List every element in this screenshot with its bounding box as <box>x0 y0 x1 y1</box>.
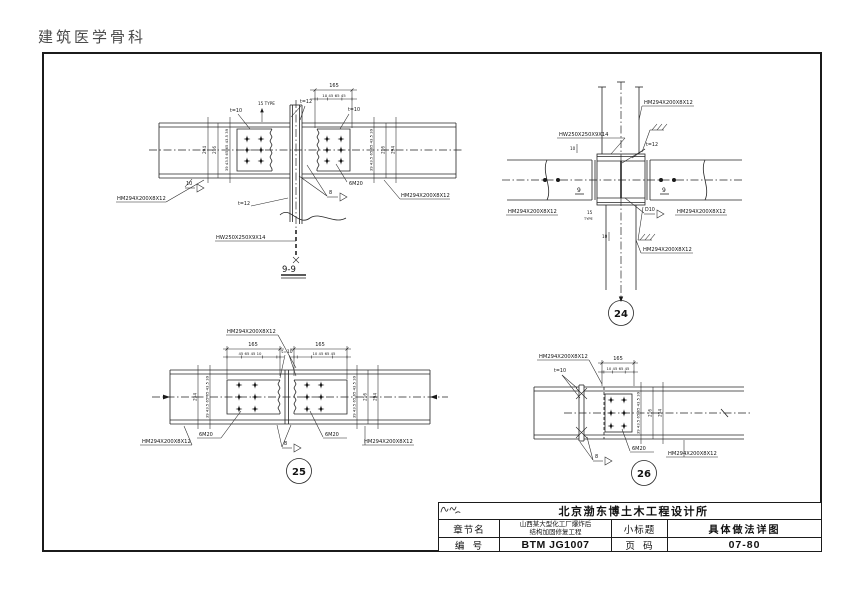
section-mark: 9 <box>577 187 581 194</box>
section-mark: 9 <box>662 187 666 194</box>
beam-size-label: HM294X200X8X12 <box>539 354 588 360</box>
typ-weld-label: 15 <box>587 210 593 215</box>
beam-size-label: HM294X200X8X12 <box>364 439 413 445</box>
dim-stack-label: 39 43.5 65 65 43.5 39 <box>224 128 229 171</box>
detail-number-badge: 24 <box>614 309 628 320</box>
dim-depth-label: 294 <box>202 146 207 154</box>
dim-depth-label: 216 <box>648 409 653 417</box>
section-title: 9-9 <box>282 265 296 275</box>
gap-dim-label: 10 <box>602 234 608 239</box>
dim-stack-label: 39 43.5 65 65 43.5 39 <box>352 375 357 418</box>
detail-9-9-section: 165 10 45 65 45 15 TYPE t=12 t=10 t=10 3… <box>116 83 464 278</box>
detail-25-splice: HM294X200X8X12 165 45 65 45 10 165 10 45… <box>140 329 448 484</box>
detail-24-plan: 9 9 HM294X200X8X12 HW250X250X9X14 t=12 1… <box>502 82 744 326</box>
beam-size-label: HM294X200X8X12 <box>142 439 191 445</box>
dim-total-label: 165 <box>613 356 623 362</box>
plate-thickness-label: t=10 <box>230 108 242 114</box>
bolt-group-label: 6M20 <box>632 446 646 452</box>
dim-total-label: 165 <box>329 83 339 89</box>
project-name-line2: 结构加固修复工程 <box>530 529 582 537</box>
dim-stack-label: 39 43.5 65 65 43.5 39 <box>369 128 374 171</box>
page-label: 页 码 <box>611 537 667 552</box>
subtitle-label: 小标题 <box>611 520 667 537</box>
dim-sub-label: 10 45 65 45 <box>313 351 337 356</box>
plate-thickness-label: t=10 <box>348 107 360 113</box>
plate-thickness-label: t=10 <box>554 368 566 374</box>
beam-size-label: HM294X200X8X12 <box>668 451 717 457</box>
drawing-canvas: 165 10 45 65 45 15 TYPE t=12 t=10 t=10 3… <box>44 54 820 550</box>
detail-number-badge: 25 <box>292 467 306 478</box>
number-value: BTM JG1007 <box>499 537 611 552</box>
drawing-sheet-frame: 165 10 45 65 45 15 TYPE t=12 t=10 t=10 3… <box>42 52 822 552</box>
title-block-company-row: 北京渤东博土木工程设计所 <box>439 503 821 520</box>
beam-size-label: HM294X200X8X12 <box>117 196 166 202</box>
bolt-group-label: 6M20 <box>349 181 363 187</box>
weld-size-label: D10 <box>645 207 655 213</box>
dim-total-label: 165 <box>248 342 258 348</box>
bolt-group-label: 6M20 <box>325 432 339 438</box>
weld-size-label: 8 <box>329 190 332 196</box>
column-size-label: HW250X250X9X14 <box>216 235 266 241</box>
typ-weld-label: TYPE <box>583 217 594 221</box>
chapter-name-label: 章节名 <box>439 520 499 537</box>
plate-thickness-label: t=12 <box>646 142 658 148</box>
dim-depth-label: 294 <box>193 393 198 401</box>
dim-sub-label: 10 45 65 45 <box>607 366 631 371</box>
dim-depth-label: 294 <box>391 146 396 154</box>
dim-stack-label: 39 43.5 65 65 43.5 39 <box>205 375 210 418</box>
weld-size-label: 8 <box>284 441 287 447</box>
dim-stack-label: 39 43.5 65 65 43.5 39 <box>636 391 641 434</box>
subtitle-value: 具体做法详图 <box>667 520 821 537</box>
detail-26-connection: HM294X200X8X12 t=10 165 10 45 65 45 39 4… <box>534 354 750 486</box>
bolt-group-label: 6M20 <box>199 432 213 438</box>
chapter-name-value: 山西某大型化工厂爆炸后 结构加固修复工程 <box>499 520 611 537</box>
dim-total-label: 165 <box>315 342 325 348</box>
weld-size-label: 8 <box>595 454 598 460</box>
plate-thickness-label: t=12 <box>300 99 312 105</box>
beam-size-label: HM294X200X8X12 <box>677 209 726 215</box>
plate-thickness-label: t=12 <box>238 201 250 207</box>
dim-depth-label: 216 <box>212 146 217 154</box>
title-block: 北京渤东博土木工程设计所 章节名 山西某大型化工厂爆炸后 结构加固修复工程 小标… <box>438 502 821 551</box>
dim-depth-label: 294 <box>658 409 663 417</box>
company-name: 北京渤东博土木工程设计所 <box>559 503 709 519</box>
gap-dim-label: 10 <box>570 146 576 151</box>
dim-sub-label: 10 45 65 45 <box>322 93 346 98</box>
column-size-label: HW250X250X9X14 <box>559 132 609 138</box>
plate-thickness-label: t=10 <box>281 349 292 355</box>
beam-size-label: HM294X200X8X12 <box>644 100 693 106</box>
page-header-watermark: 建筑医学骨科 <box>38 26 146 47</box>
typ-weld-label: 15 TYPE <box>258 101 275 106</box>
dim-depth-label: 294 <box>373 393 378 401</box>
page-value: 07-80 <box>667 537 821 552</box>
beam-size-label: HM294X200X8X12 <box>508 209 557 215</box>
detail-number-badge: 26 <box>637 469 651 480</box>
number-label: 编 号 <box>439 537 499 552</box>
dim-depth-label: 216 <box>363 393 368 401</box>
title-block-grid: 章节名 山西某大型化工厂爆炸后 结构加固修复工程 小标题 具体做法详图 编 号 … <box>439 520 821 552</box>
beam-size-label: HM294X200X8X12 <box>643 247 692 253</box>
project-name-line1: 山西某大型化工厂爆炸后 <box>520 521 592 529</box>
dim-sub-label: 45 65 45 10 <box>239 351 263 356</box>
dim-depth-label: 216 <box>381 146 386 154</box>
beam-size-label: HM294X200X8X12 <box>227 329 276 335</box>
beam-size-label: HM294X200X8X12 <box>401 193 450 199</box>
